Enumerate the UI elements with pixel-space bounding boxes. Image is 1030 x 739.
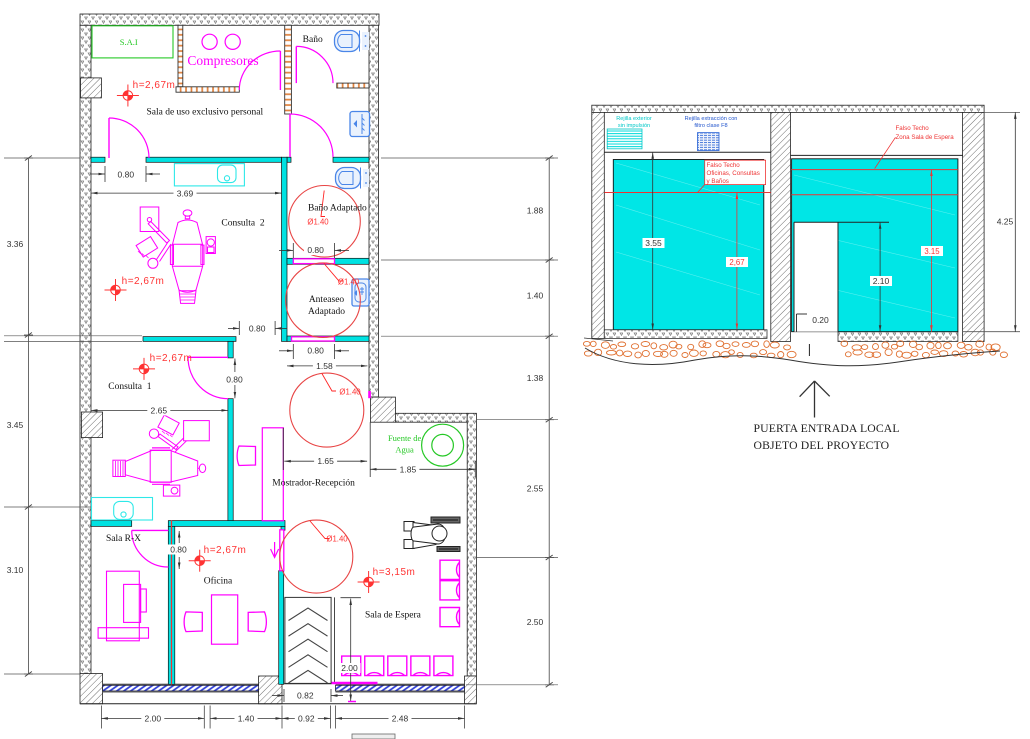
svg-text:0.82: 0.82 <box>297 691 314 701</box>
svg-text:2.55: 2.55 <box>527 484 544 494</box>
svg-text:filtro clase F8: filtro clase F8 <box>694 123 727 129</box>
svg-text:Consulta 2: Consulta 2 <box>221 219 265 229</box>
svg-text:1.38: 1.38 <box>527 373 544 383</box>
svg-text:1.40: 1.40 <box>527 291 544 301</box>
svg-text:Falso Techo: Falso Techo <box>707 162 741 169</box>
svg-text:Fuente de: Fuente de <box>388 433 422 443</box>
svg-text:Adaptado: Adaptado <box>308 307 345 317</box>
svg-text:2.10: 2.10 <box>873 276 890 286</box>
svg-text:Oficina: Oficina <box>204 575 233 586</box>
svg-text:4.25: 4.25 <box>997 217 1014 227</box>
svg-text:1.40: 1.40 <box>238 713 255 723</box>
svg-text:2.00: 2.00 <box>145 713 162 723</box>
svg-text:3.10: 3.10 <box>7 565 24 575</box>
svg-text:0.92: 0.92 <box>298 713 315 723</box>
svg-text:Agua: Agua <box>395 444 414 454</box>
svg-text:Oficinas, Consultas: Oficinas, Consultas <box>707 170 760 177</box>
svg-text:1.88: 1.88 <box>527 206 544 216</box>
svg-text:PUERTA ENTRADA LOCAL: PUERTA ENTRADA LOCAL <box>754 422 900 435</box>
svg-text:Falso Techo: Falso Techo <box>896 125 930 132</box>
svg-text:Rejilla exterior: Rejilla exterior <box>616 116 652 122</box>
svg-text:Sala de Espera: Sala de Espera <box>365 611 422 621</box>
svg-text:Rejilla extracción con: Rejilla extracción con <box>685 116 738 122</box>
svg-text:Ø1.40: Ø1.40 <box>339 388 361 397</box>
svg-text:Mostrador-Recepción: Mostrador-Recepción <box>272 478 355 488</box>
svg-text:1.58: 1.58 <box>316 361 333 371</box>
svg-text:h=2,67m: h=2,67m <box>133 80 176 91</box>
svg-text:h=3,15m: h=3,15m <box>373 567 416 578</box>
svg-text:3.45: 3.45 <box>7 420 24 430</box>
svg-text:2.50: 2.50 <box>527 617 544 627</box>
svg-text:3.55: 3.55 <box>645 238 662 248</box>
svg-text:Sala R-X: Sala R-X <box>106 534 141 544</box>
svg-text:OBJETO DEL PROYECTO: OBJETO DEL PROYECTO <box>754 439 890 452</box>
svg-text:0.20: 0.20 <box>812 315 829 325</box>
svg-text:0.80: 0.80 <box>307 245 324 255</box>
svg-text:1.85: 1.85 <box>400 464 417 474</box>
svg-text:2,67: 2,67 <box>729 258 744 267</box>
svg-text:3.15: 3.15 <box>924 247 940 256</box>
svg-text:3.36: 3.36 <box>7 239 24 249</box>
svg-text:Sala de uso exclusivo personal: Sala de uso exclusivo personal <box>146 107 263 117</box>
svg-text:0.80: 0.80 <box>118 170 135 180</box>
svg-text:Ø1.40: Ø1.40 <box>338 278 360 287</box>
svg-text:Anteaseo: Anteaseo <box>309 295 345 305</box>
svg-text:Baño: Baño <box>303 35 323 45</box>
svg-text:Baño Adaptado: Baño Adaptado <box>308 204 367 214</box>
svg-text:0.80: 0.80 <box>226 375 243 385</box>
svg-text:0.80: 0.80 <box>307 346 324 356</box>
svg-text:h=2,67m: h=2,67m <box>150 353 193 364</box>
svg-text:2.48: 2.48 <box>392 713 409 723</box>
svg-text:0.80: 0.80 <box>249 323 266 333</box>
svg-text:Compresores: Compresores <box>187 53 258 68</box>
svg-text:Ø1.40: Ø1.40 <box>307 218 329 227</box>
svg-text:Ø1.40: Ø1.40 <box>326 535 348 544</box>
svg-text:Zona Sala de Espera: Zona Sala de Espera <box>896 134 955 141</box>
svg-text:h=2,67m: h=2,67m <box>122 276 165 287</box>
svg-text:sin impulsión: sin impulsión <box>618 123 650 129</box>
svg-text:2.00: 2.00 <box>341 663 358 673</box>
svg-text:3.69: 3.69 <box>177 188 194 198</box>
svg-text:2.65: 2.65 <box>151 405 168 415</box>
svg-text:0.80: 0.80 <box>170 545 187 555</box>
svg-text:Consulta 1: Consulta 1 <box>108 382 152 392</box>
svg-text:S.A.I: S.A.I <box>120 37 138 47</box>
svg-text:h=2,67m: h=2,67m <box>204 545 247 556</box>
svg-text:1.65: 1.65 <box>317 456 334 466</box>
svg-text:y Baños: y Baños <box>707 178 729 185</box>
